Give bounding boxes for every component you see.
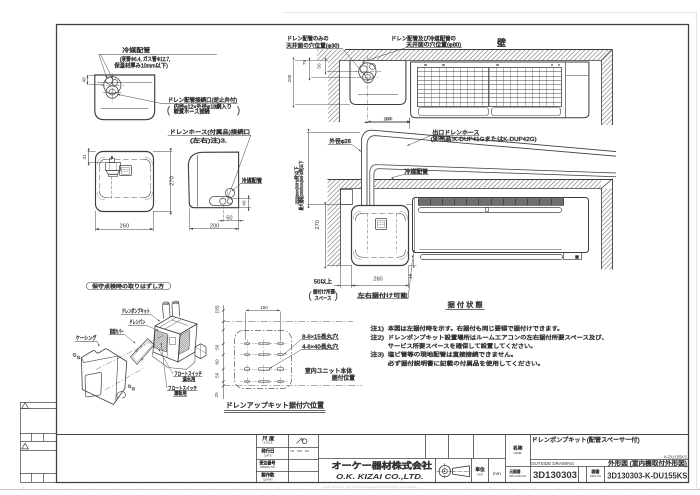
svg-text:ドレンパン: ドレンパン	[129, 319, 145, 326]
svg-text:50: 50	[215, 372, 220, 378]
svg-text:270: 270	[170, 176, 176, 186]
svg-text:保守点検時の取りはずし方: 保守点検時の取りはずし方	[92, 282, 164, 290]
svg-text:50: 50	[226, 215, 232, 221]
svg-text:必ず据付説明書に記載の付属品を使用してください。: 必ず据付説明書に記載の付属品を使用してください。	[388, 360, 544, 368]
svg-text:ドレンポンプキット(配管スペーサー付): ドレンポンプキット(配管スペーサー付)	[532, 436, 640, 444]
svg-text:MO: MO	[297, 449, 302, 453]
svg-text:260: 260	[120, 224, 130, 230]
svg-text:): )	[237, 105, 241, 117]
svg-text:塩ビ管等の現地配管は直接接続できません。: 塩ビ管等の現地配管は直接接続できません。	[388, 351, 517, 359]
svg-text:オーケー器材株式会社: オーケー器材株式会社	[332, 459, 433, 470]
svg-text:図番: 図番	[592, 469, 600, 474]
svg-text:150: 150	[383, 117, 391, 122]
svg-text:50: 50	[317, 63, 322, 69]
svg-text:K-DU155KS: K-DU155KS	[664, 454, 687, 459]
svg-text:出口ドレンホース: 出口ドレンホース	[432, 128, 479, 136]
svg-text:注2): 注2)	[370, 333, 384, 341]
svg-text:200: 200	[287, 74, 292, 82]
svg-text:(: (	[308, 290, 312, 302]
svg-text:元図番: 元図番	[510, 469, 521, 474]
svg-text:3D130303-K-DU155KS: 3D130303-K-DU155KS	[607, 471, 687, 481]
svg-text:40: 40	[242, 200, 248, 206]
svg-text:保温材厚み10mm以下): 保温材厚み10mm以下)	[114, 61, 168, 69]
svg-text:50以上: 50以上	[314, 278, 333, 286]
svg-text:NAME: NAME	[513, 451, 521, 455]
svg-text:DWG NO: DWG NO	[590, 474, 601, 478]
svg-text:COPYRIGHT OK KIZAI 3D130303 DU: COPYRIGHT OK KIZAI 3D130303 DU155KS OUTS…	[322, 485, 417, 489]
svg-text:(別売品:K-DUP41GまたはK-DUP42G): (別売品:K-DUP41GまたはK-DUP42G)	[431, 135, 537, 143]
svg-text:(: (	[167, 105, 171, 117]
svg-text:スペース: スペース	[315, 295, 332, 302]
svg-text:60: 60	[215, 359, 220, 365]
svg-text:200: 200	[210, 224, 220, 230]
svg-text:ドレンホース(付属品)接続口: ドレンホース(付属品)接続口	[169, 128, 250, 136]
svg-text:ドレン配管及び冷媒配管の: ドレン配管及び冷媒配管の	[391, 35, 456, 43]
svg-text:ドレンポンプキット設置場所はルームエアコンの左右据付所要スペ: ドレンポンプキット設置場所はルームエアコンの左右据付所要スペース及び、	[388, 333, 608, 341]
svg-text:3D130303: 3D130303	[533, 469, 577, 480]
svg-text:ドレン配管接続口(逆止弁付): ドレン配管接続口(逆止弁付)	[168, 96, 238, 104]
svg-text:ORDER NO: ORDER NO	[260, 465, 276, 469]
svg-text:冷媒配管: 冷媒配管	[405, 167, 429, 175]
svg-text:据付位置: 据付位置	[332, 374, 355, 382]
svg-text:運転用: 運転用	[174, 390, 187, 397]
svg-text:260: 260	[373, 277, 382, 283]
svg-text:DATE: DATE	[264, 453, 271, 457]
svg-text:据 付 状 態: 据 付 状 態	[448, 300, 483, 309]
svg-text:サービス所要スペースを確保して設置してください。: サービス所要スペースを確保して設置してください。	[388, 342, 537, 350]
svg-text:2500mm(60Hz時)以下: 2500mm(60Hz時)以下	[294, 166, 300, 204]
svg-text:前面カバー: 前面カバー	[110, 327, 124, 335]
svg-text:270: 270	[315, 220, 321, 229]
svg-text:OUTSIDE DRAWING: OUTSIDE DRAWING	[531, 461, 574, 467]
svg-text:注3): 注3)	[370, 351, 384, 359]
svg-text:冷媒配管: 冷媒配管	[242, 176, 263, 184]
svg-text:(左右)注)3.: (左右)注)3.	[190, 136, 228, 144]
svg-text:ドレンアップキット据付穴位置: ドレンアップキット据付穴位置	[226, 401, 324, 410]
svg-text:本図は左据付時を示す。右据付も同じ要領で据付けできます。: 本図は左据付時を示す。右据付も同じ要領で据付けできます。	[388, 325, 564, 333]
svg-text:(液管Φ6.4, ガス管Φ12.7,: (液管Φ6.4, ガス管Φ12.7,	[120, 55, 171, 63]
svg-text:ケーシング: ケーシング	[76, 334, 97, 342]
svg-text:mm: mm	[493, 472, 501, 477]
svg-text:軟質ホース接続: 軟質ホース接続	[174, 108, 210, 116]
svg-text:40: 40	[82, 77, 88, 83]
svg-text:据付け所要: 据付け所要	[313, 287, 335, 295]
svg-text:8-6×15長丸穴: 8-6×15長丸穴	[302, 332, 339, 340]
svg-text:外形図 (室内機取付外形図): 外形図 (室内機取付外形図)	[608, 459, 687, 467]
svg-text:31: 31	[82, 154, 88, 160]
svg-text:ドレン配管のみの: ドレン配管のみの	[287, 35, 329, 43]
svg-text:QUANT: QUANT	[263, 477, 273, 481]
svg-text:O.K. KIZAI CO.,LTD.: O.K. KIZAI CO.,LTD.	[336, 472, 424, 481]
svg-text:50: 50	[215, 344, 220, 350]
svg-text:ORG DWG NO: ORG DWG NO	[509, 474, 527, 478]
svg-text:室内ユニット本体: 室内ユニット本体	[305, 367, 352, 375]
svg-text:150: 150	[260, 305, 268, 310]
svg-text:UNIT: UNIT	[477, 472, 484, 476]
svg-text:左右据付け可能: 左右据付け可能	[358, 291, 408, 299]
svg-text:DA: DA	[305, 449, 309, 453]
svg-text:注1): 注1)	[370, 325, 384, 333]
svg-text:外径φ26: 外径φ26	[329, 137, 351, 145]
svg-text:冷媒配管: 冷媒配管	[122, 47, 150, 55]
svg-text:): )	[335, 290, 339, 302]
svg-text:SCALE: SCALE	[263, 441, 272, 445]
svg-text:壁: 壁	[497, 37, 506, 48]
svg-text:25: 25	[214, 392, 219, 398]
svg-text:ドレンポンプキット: ドレンポンプキット	[122, 307, 150, 315]
svg-text:(35): (35)	[215, 305, 220, 313]
